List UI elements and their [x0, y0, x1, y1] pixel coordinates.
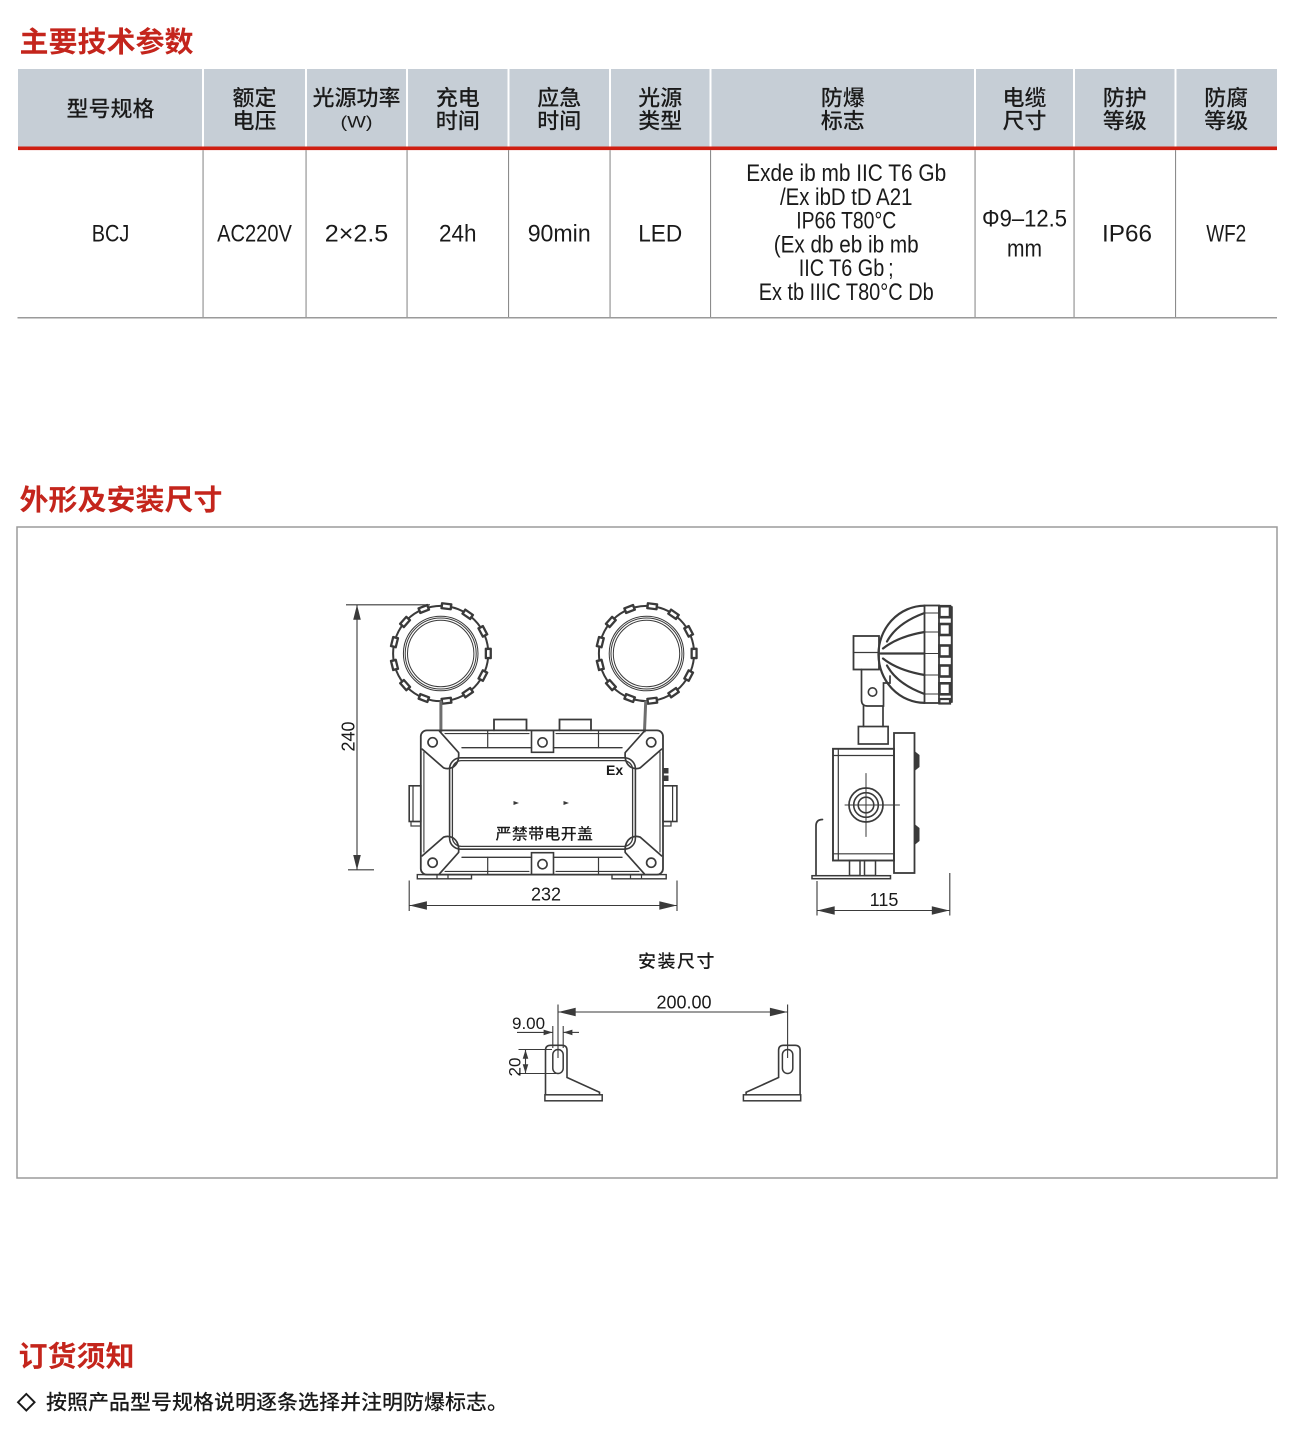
svg-text:Ex: Ex [606, 762, 623, 778]
svg-text:AC220V: AC220V [217, 221, 292, 248]
svg-text:BCJ: BCJ [92, 221, 130, 248]
svg-text:mm: mm [1007, 236, 1042, 263]
svg-text:90min: 90min [528, 221, 591, 248]
svg-text:240: 240 [339, 721, 359, 751]
svg-text:2×2.5: 2×2.5 [325, 221, 389, 248]
svg-text:115: 115 [870, 890, 899, 910]
svg-text:(W): (W) [341, 113, 373, 132]
svg-text:9.00: 9.00 [512, 1014, 545, 1033]
svg-text:WF2: WF2 [1206, 221, 1246, 248]
svg-text:IP66: IP66 [1102, 221, 1152, 248]
svg-text:Ex tb IIIC T80°C Db: Ex tb IIIC T80°C Db [759, 279, 934, 306]
svg-text:200.00: 200.00 [656, 993, 711, 1013]
svg-text:20: 20 [506, 1058, 525, 1077]
svg-text:24h: 24h [439, 221, 477, 248]
svg-text:232: 232 [531, 885, 561, 905]
svg-text:LED: LED [638, 221, 682, 248]
svg-text:Φ9–12.5: Φ9–12.5 [982, 206, 1067, 233]
